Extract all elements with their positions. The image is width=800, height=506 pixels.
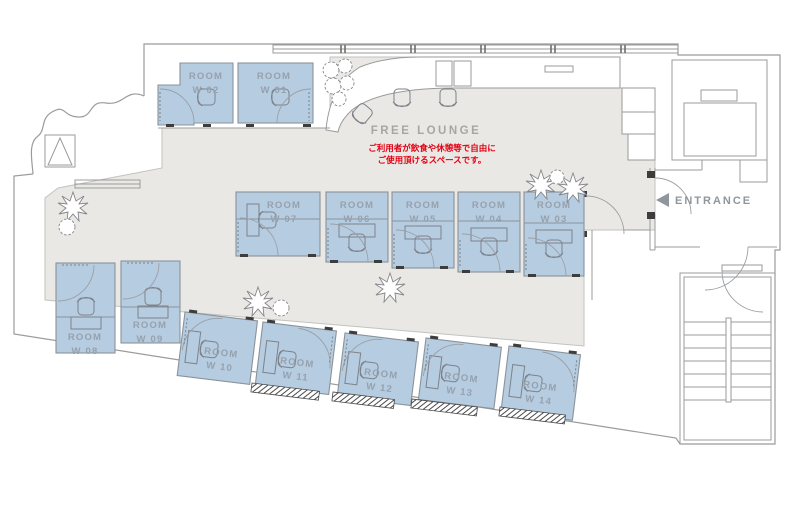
room-w06: ROOM W 06 [326,192,388,263]
entrance-arrow-icon [656,193,669,207]
room-label: ROOM [133,320,167,331]
bush-icon [338,59,352,73]
room-w01: ROOM W 01 [238,63,313,123]
elevator [672,60,767,182]
room-label: ROOM [340,200,374,211]
room-number: W 03 [541,214,568,225]
stairs [680,265,775,444]
room-w04: ROOM W 04 [458,192,520,273]
room-w03: ROOM W 03 [524,192,584,277]
room-number: W 07 [271,214,298,225]
floor-plan-canvas: ROOM W 02 ROOM W 01 ROOM W 07 ROOM W 06 [0,0,800,506]
room-label: ROOM [537,200,571,211]
room-w09: ROOM W 09 [121,261,180,345]
entrance-label: ENTRANCE [675,195,752,207]
room-number: W 09 [137,334,164,345]
lounge-note-line2: ご使用頂けるスペースです。 [378,155,487,165]
storage-box [622,112,655,134]
room-number: W 05 [410,214,437,225]
room-number: W 04 [476,214,503,225]
room-label: ROOM [267,200,301,211]
bush-icon [550,170,564,184]
room-number: W 02 [193,85,220,96]
storage-box [628,134,655,160]
bush-icon [59,219,75,235]
room-label: ROOM [189,71,223,82]
floor-plan: ROOM W 02 ROOM W 01 ROOM W 07 ROOM W 06 [0,0,800,506]
bush-icon [332,92,346,106]
room-w02: ROOM W 02 [158,63,233,125]
room-w07: ROOM W 07 [236,192,320,257]
curved-wall [31,94,144,174]
room-number: W 06 [344,214,371,225]
room-w13: ROOM W 13 [418,335,501,409]
room-number: W 08 [72,346,99,357]
room-number: W 01 [261,85,288,96]
room-w11: ROOM W 11 [255,319,337,395]
shaft-symbol [45,135,75,167]
bush-icon [273,300,289,316]
counter-appliance [454,61,471,86]
window-band-top [273,45,678,53]
room-label: ROOM [406,200,440,211]
free-lounge-label: FREE LOUNGE [371,125,482,137]
room-w08: ROOM W 08 [56,263,115,357]
bush-icon [340,76,354,90]
room-w10: ROOM W 10 [177,309,258,384]
room-label: ROOM [257,71,291,82]
room-w05: ROOM W 05 [392,192,454,269]
room-label: ROOM [472,200,506,211]
room-label: ROOM [68,332,102,343]
counter-appliance [436,61,452,86]
stair-rail [726,318,731,402]
storage-box [622,88,655,112]
stair-door [722,265,762,271]
entrance: ENTRANCE [656,193,752,207]
bush-icon [323,62,339,78]
lounge-note-line1: ご利用者が飲食や休憩等で自由に [368,143,496,153]
